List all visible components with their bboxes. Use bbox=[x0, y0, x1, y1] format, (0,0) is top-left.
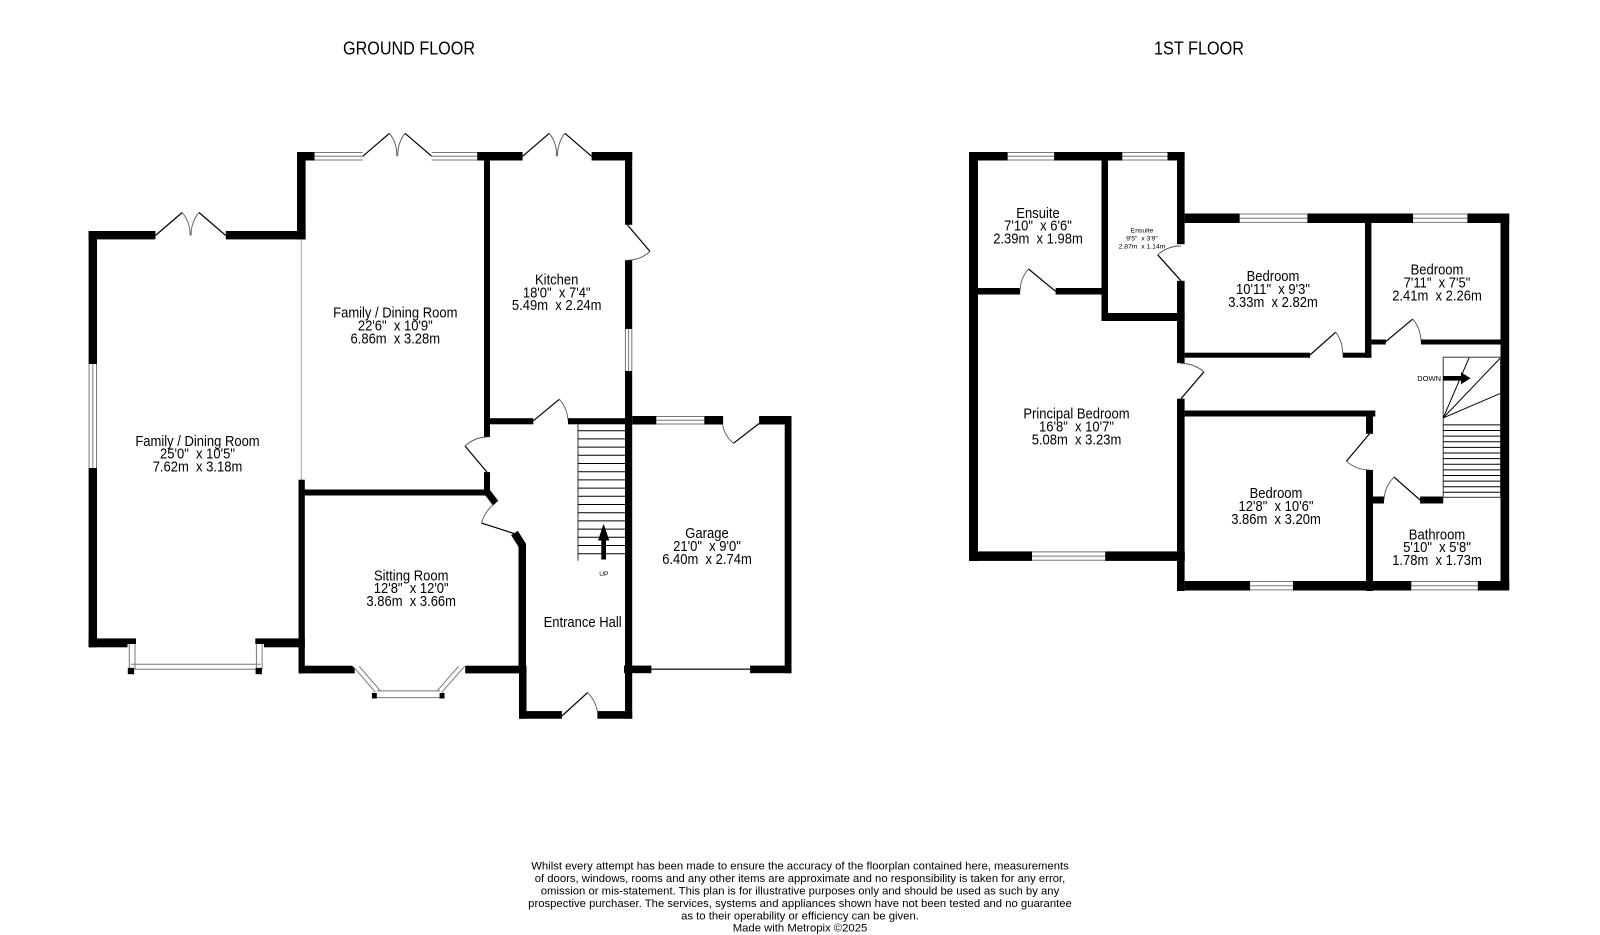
svg-text:5.08m x 3.23m: 5.08m x 3.23m bbox=[1032, 432, 1122, 449]
svg-text:Made with Metropix ©2025: Made with Metropix ©2025 bbox=[733, 922, 868, 934]
svg-text:Ensuite: Ensuite bbox=[1131, 228, 1154, 235]
svg-text:5.49m x 2.24m: 5.49m x 2.24m bbox=[512, 297, 602, 314]
svg-text:6.86m x 3.28m: 6.86m x 3.28m bbox=[351, 331, 441, 348]
svg-text:UP: UP bbox=[599, 571, 609, 578]
svg-text:3.86m x 3.66m: 3.86m x 3.66m bbox=[366, 593, 456, 610]
svg-text:GROUND FLOOR: GROUND FLOOR bbox=[343, 38, 475, 59]
svg-text:3.86m x 3.20m: 3.86m x 3.20m bbox=[1231, 511, 1321, 528]
svg-text:1.78m x 1.73m: 1.78m x 1.73m bbox=[1392, 552, 1482, 569]
svg-text:DOWN: DOWN bbox=[1417, 374, 1441, 383]
svg-text:of doors, windows, rooms and a: of doors, windows, rooms and any other i… bbox=[535, 873, 1066, 885]
svg-text:2.41m x 2.26m: 2.41m x 2.26m bbox=[1392, 287, 1482, 304]
svg-text:Whilst every attempt has been: Whilst every attempt has been made to en… bbox=[531, 861, 1069, 873]
svg-text:6.40m x 2.74m: 6.40m x 2.74m bbox=[662, 551, 752, 568]
svg-text:omission or mis-statement. Thi: omission or mis-statement. This plan is … bbox=[541, 886, 1060, 898]
svg-text:2.39m x 1.98m: 2.39m x 1.98m bbox=[993, 231, 1083, 248]
svg-text:as to their operability or eff: as to their operability or efficiency ca… bbox=[681, 911, 919, 923]
svg-text:prospective purchaser. The ser: prospective purchaser. The services, sys… bbox=[528, 898, 1072, 910]
svg-text:7.62m x 3.18m: 7.62m x 3.18m bbox=[153, 459, 243, 476]
svg-text:1ST FLOOR: 1ST FLOOR bbox=[1154, 38, 1244, 59]
svg-text:Entrance Hall: Entrance Hall bbox=[544, 614, 622, 631]
svg-text:3.33m x 2.82m: 3.33m x 2.82m bbox=[1228, 294, 1318, 311]
svg-text:2.87m x 1.14m: 2.87m x 1.14m bbox=[1119, 243, 1166, 250]
svg-text:9'5" x 3'9": 9'5" x 3'9" bbox=[1126, 236, 1158, 243]
